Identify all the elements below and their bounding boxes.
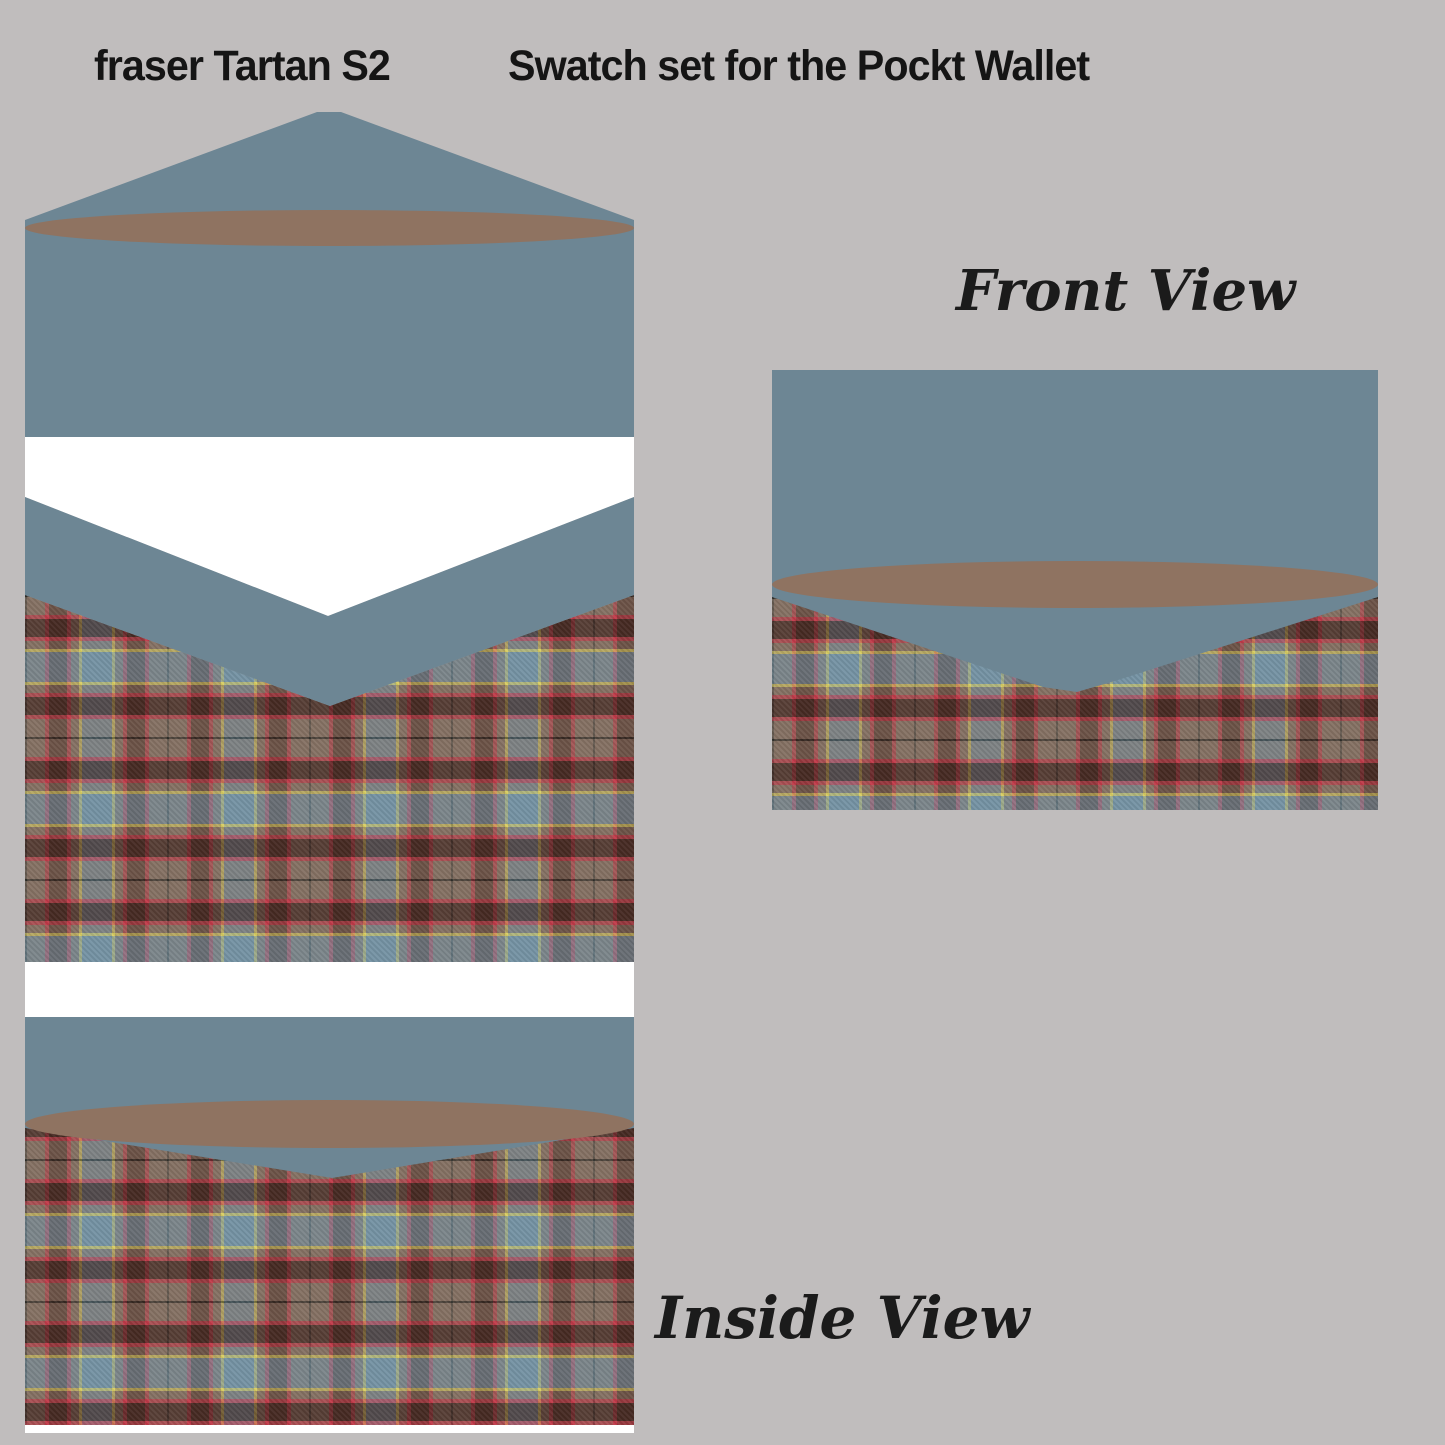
snap-button [25,210,634,246]
front-view-panel [772,370,1378,810]
bottom-edge-lining [25,1425,634,1433]
page-subtitle: Swatch set for the Pockt Wallet [508,42,1089,91]
page-title: fraser Tartan S2 [94,42,390,91]
divider-lining [25,962,634,1017]
swatch-sheet-background: fraser Tartan S2 Swatch set for the Pock… [0,0,1445,1445]
front-view-label: Front View [956,258,1295,324]
inside-view-panel [25,112,634,1433]
inside-view-label: Inside View [655,1284,1029,1352]
top-closure-flap [25,112,634,437]
snap-button [25,1100,634,1148]
snap-button [772,561,1378,608]
